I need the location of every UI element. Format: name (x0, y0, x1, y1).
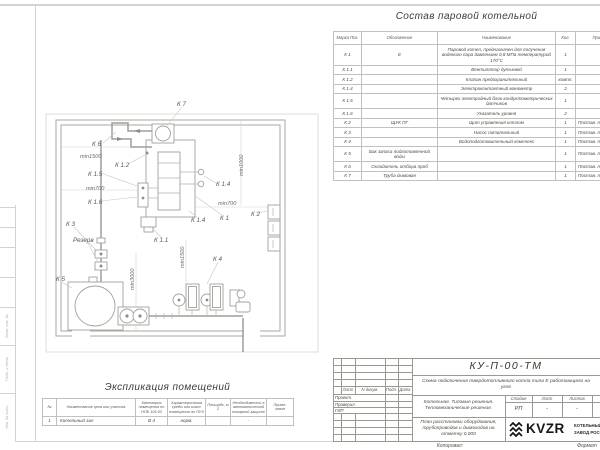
parts-cell: Клапан предохранительный (438, 75, 556, 85)
rooms-cell (267, 416, 294, 426)
parts-cell: Бак запаса подготовленной воды (362, 147, 438, 162)
parts-cell (576, 65, 600, 75)
parts-cell (576, 109, 600, 119)
object-name: Котельная. Типовые решения.Тепломеханиче… (414, 397, 503, 415)
rooms-header-cell: Наименование цеха или участка (57, 399, 136, 417)
water-treatment-k4 (173, 284, 250, 352)
plan-label: К 1.4 (216, 181, 231, 188)
parts-cell: К 1.4 (334, 84, 362, 94)
parts-cell (438, 147, 556, 162)
rooms-header-cell: Необходимость в автоматической пожарной … (231, 399, 267, 417)
parts-row: К 1.5Четырех электродный блок кондуктоме… (334, 94, 600, 109)
parts-cell: компл. (556, 75, 576, 85)
parts-cell: 1 (556, 45, 576, 66)
rooms-header-row: №Наименование цеха или участкаКатегория … (43, 399, 294, 417)
parts-row: К 1.1Вентилятор дутьевой1 (334, 65, 600, 75)
parts-cell: 1 (556, 147, 576, 162)
rooms-header-cell: Площадь, м 2 (206, 399, 231, 417)
format-label: Формат (577, 443, 600, 449)
parts-cell: Охладитель отбора проб (362, 162, 438, 172)
parts-table: Марка Поз. Обозначение Наименование Кол.… (333, 31, 600, 181)
parts-header-designation: Обозначение (362, 32, 438, 45)
parts-cell: 1 (556, 94, 576, 109)
parts-cell: К 6 (334, 162, 362, 172)
parts-cell (362, 137, 438, 147)
kvzr-logo-text: KVZR (526, 421, 565, 436)
parts-header-note: Примечание (576, 32, 600, 45)
parts-cell (576, 84, 600, 94)
parts-header-name: Наименование (438, 32, 556, 45)
parts-cell: 2 (556, 84, 576, 94)
parts-table-title: Состав паровой котельной (333, 11, 600, 22)
doc-number: КУ-П-00-ТМ (412, 359, 600, 375)
rooms-header-cell: Приме- чание (267, 399, 294, 417)
parts-row: К 6Охладитель отбора проб1Постав. по сог… (334, 162, 600, 172)
plan-label: К 7 (177, 101, 186, 108)
parts-cell (362, 84, 438, 94)
parts-header-qty: Кол. (556, 32, 576, 45)
parts-cell: Водоподготовительный комплекс (438, 137, 556, 147)
parts-cell: К 5 (334, 147, 362, 162)
parts-cell: 1 (556, 171, 576, 181)
parts-cell: Труба дымовая (362, 171, 438, 181)
plan-label: К 4 (213, 256, 222, 263)
sheet-name: План расстановки оборудования, трубопров… (414, 418, 503, 440)
parts-row: К 4Водоподготовительный комплекс1Постав.… (334, 137, 600, 147)
sheets-label: Листов (562, 395, 592, 402)
company-name: КОТЕЛЬНЫЙЗАВОД РОССИИ (574, 423, 600, 437)
parts-cell (362, 75, 438, 85)
parts-cell: Постав. по соглас. (576, 137, 600, 147)
parts-cell: Четырех электродный блок кондуктометриче… (438, 94, 556, 109)
rooms-cell: норм. (168, 416, 206, 426)
plan-label: К 3 (66, 221, 75, 228)
parts-cell: Постав. по соглас. (576, 171, 600, 181)
doc-subtitle: Схема подключения твердотопливного котла… (417, 376, 595, 394)
rooms-header-cell: № (43, 399, 57, 417)
parts-cell (438, 162, 556, 172)
parts-row: К 1.4Электроконтактный манометр2 (334, 84, 600, 94)
plan-label: min3000 (130, 268, 136, 290)
parts-cell: К 1.5 (334, 94, 362, 109)
plan-label: К 2 (251, 211, 260, 218)
parts-cell: Постав. по соглас. (576, 147, 600, 162)
plan-label: min700 (86, 186, 105, 192)
parts-cell (438, 171, 556, 181)
parts-cell: 1 (556, 128, 576, 138)
parts-cell: Щит управления котлом (438, 118, 556, 128)
plan-label: К 6 (92, 141, 101, 148)
role-project: Проект. (335, 395, 352, 400)
col-header-sign: Подп. (385, 386, 398, 394)
plan-label: К 1 (220, 215, 229, 222)
plan-label: К 1.1 (154, 237, 168, 244)
parts-cell (362, 94, 438, 109)
col-header-doc: N докум. (355, 386, 385, 394)
plan-label: К 5 (56, 276, 65, 283)
storage-tank-k5 (68, 277, 123, 330)
rooms-cell: - (231, 416, 267, 426)
parts-row: К 3Насос питательный1Постав. по соглас. (334, 128, 600, 138)
parts-cell (362, 65, 438, 75)
parts-cell: Постав. по соглас. (576, 128, 600, 138)
rooms-row: 1Котельный залВ 4норм.- (43, 416, 294, 426)
room-table-title: Экспликация помещений (42, 382, 293, 393)
twin-pump-unit (118, 307, 243, 325)
col-header-sheet: Лист (341, 386, 355, 394)
drawing-sheet: Взам. инв. № Подп. и дата Инв. № подл. (0, 0, 600, 450)
parts-cell: К 7 (334, 171, 362, 181)
parts-cell: Электроконтактный манометр (438, 84, 556, 94)
door-opening (244, 330, 260, 338)
rooms-cell: В 4 (136, 416, 168, 426)
parts-cell (576, 75, 600, 85)
parts-cell: Постав. по соглас. (576, 118, 600, 128)
rooms-header-cell: Характеристика среды или класс помещения… (168, 399, 206, 417)
rooms-cell (206, 416, 231, 426)
parts-row: К 2ЩУК ПГЩит управления котлом1Постав. п… (334, 118, 600, 128)
parts-cell: К 3 (334, 128, 362, 138)
door-opening (72, 330, 90, 338)
parts-cell: 1 (556, 118, 576, 128)
parts-row: К 1ЕПаровой котел, предназначен для полу… (334, 45, 600, 66)
role-checked: Проверил (335, 402, 355, 407)
parts-cell: 2 (556, 109, 576, 119)
parts-cell (576, 45, 600, 66)
parts-row: К 5Бак запаса подготовленной воды1Постав… (334, 147, 600, 162)
plan-label: К 1.6 (88, 199, 103, 206)
plan-label: К 1.2 (115, 162, 130, 169)
control-panels-k2 (268, 205, 280, 251)
parts-cell: К 4 (334, 137, 362, 147)
parts-row: К 1.6Указатель уровня2 (334, 109, 600, 119)
rooms-header-cell: Категория помещения по НПБ 105-03 (136, 399, 168, 417)
plan-label: Резерв (73, 237, 94, 244)
parts-cell: К 2 (334, 118, 362, 128)
parts-cell: К 1 (334, 45, 362, 66)
parts-cell: К 1.6 (334, 109, 362, 119)
parts-cell: 1 (556, 65, 576, 75)
stage-value: РП (505, 402, 532, 417)
sheet-label: Лист (532, 395, 562, 402)
parts-cell: Указатель уровня (438, 109, 556, 119)
sheets-value: - (562, 402, 592, 417)
col-header-date: Дата (398, 386, 412, 394)
parts-cell (362, 109, 438, 119)
parts-cell: 1 (556, 162, 576, 172)
parts-row: К 1.2Клапан предохранительныйкомпл. (334, 75, 600, 85)
parts-cell: Е (362, 45, 438, 66)
sheet-value: - (532, 402, 562, 417)
parts-cell: К 1.2 (334, 75, 362, 85)
parts-header-row: Марка Поз. Обозначение Наименование Кол.… (334, 32, 600, 45)
plan-label: min1500 (80, 154, 102, 160)
stage-label: Стадия (505, 395, 532, 402)
parts-cell (362, 128, 438, 138)
parts-cell (576, 94, 600, 109)
title-block: Лист N докум. Подп. Дата Проект. Провери… (333, 358, 600, 441)
parts-cell: 1 (556, 137, 576, 147)
parts-cell: Паровой котел, предназначен для получени… (438, 45, 556, 66)
plan-label: min1500 (180, 246, 186, 268)
plan-label: К 1.4 (191, 217, 206, 224)
parts-cell: Вентилятор дутьевой (438, 65, 556, 75)
plan-label: К 1.5 (88, 171, 103, 178)
plan-label: min700 (218, 201, 237, 207)
rooms-cell: 1 (43, 416, 57, 426)
parts-cell: Постав. по соглас. (576, 162, 600, 172)
boiler-k1 (146, 124, 196, 217)
parts-cell: К 1.1 (334, 65, 362, 75)
parts-cell: ЩУК ПГ (362, 118, 438, 128)
parts-header-mark: Марка Поз. (334, 32, 362, 45)
role-gip: ГИП (335, 408, 344, 413)
plan-label: min1000 (239, 154, 245, 176)
copied-by-label: Копировал: (410, 443, 490, 449)
room-explication-table: №Наименование цеха или участкаКатегория … (42, 398, 294, 426)
parts-row: К 7Труба дымовая1Постав. по соглас. (334, 171, 600, 181)
rooms-cell: Котельный зал (57, 416, 136, 426)
kvzr-logo-icon (509, 422, 524, 438)
parts-cell: Насос питательный (438, 128, 556, 138)
